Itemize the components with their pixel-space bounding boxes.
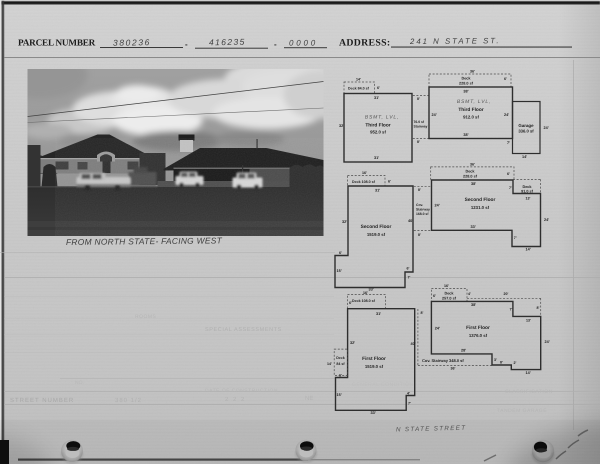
svg-text:1519.0 sf: 1519.0 sf xyxy=(365,364,384,369)
svg-text:8': 8' xyxy=(537,306,540,310)
svg-text:ROOMS: ROOMS xyxy=(135,314,157,320)
svg-text:7': 7' xyxy=(509,186,512,190)
svg-text:8': 8' xyxy=(500,361,503,365)
svg-text:Garage: Garage xyxy=(518,123,534,128)
svg-text:14': 14' xyxy=(526,371,531,375)
svg-text:14': 14' xyxy=(526,248,531,252)
svg-text:Stairway: Stairway xyxy=(414,125,428,129)
svg-text:1231.0 sf: 1231.0 sf xyxy=(471,205,490,210)
svg-text:FROM NORTH STATE- FACING WE: FROM NORTH STATE- FACING WEST xyxy=(66,235,223,247)
svg-text:Deck 108.0 sf: Deck 108.0 sf xyxy=(352,180,376,184)
svg-text:40': 40' xyxy=(408,219,413,223)
svg-text:84 sf: 84 sf xyxy=(336,362,345,366)
svg-text:40': 40' xyxy=(411,342,416,346)
svg-text:6': 6' xyxy=(349,301,352,305)
svg-text:First Floor: First Floor xyxy=(466,325,490,331)
svg-text:32': 32' xyxy=(342,220,347,224)
svg-text:76.0 sf: 76.0 sf xyxy=(414,120,425,124)
svg-text:7': 7' xyxy=(514,236,517,240)
svg-text:Deck: Deck xyxy=(444,292,454,296)
svg-text:13': 13' xyxy=(526,197,531,201)
svg-text:24': 24' xyxy=(435,204,440,208)
svg-text:31': 31' xyxy=(374,156,379,160)
svg-text:15': 15' xyxy=(337,269,342,273)
svg-text:38': 38' xyxy=(463,90,468,94)
svg-text:ADDRESS:: ADDRESS: xyxy=(339,38,390,49)
svg-text:0000: 0000 xyxy=(289,38,318,47)
svg-text:912.0 sf: 912.0 sf xyxy=(463,115,479,120)
svg-text:2 2 2: 2 2 2 xyxy=(225,396,246,403)
svg-text:Cov. Stairway 348.0 sf: Cov. Stairway 348.0 sf xyxy=(422,358,464,363)
svg-text:16': 16' xyxy=(444,284,449,288)
svg-text:14': 14' xyxy=(356,78,361,82)
svg-text:Deck 108.0 sf: Deck 108.0 sf xyxy=(352,299,376,303)
svg-text:24': 24' xyxy=(544,126,549,130)
svg-text:6': 6' xyxy=(377,86,380,90)
svg-text:First Floor: First Floor xyxy=(362,356,386,362)
svg-text:952.0 sf: 952.0 sf xyxy=(370,130,386,135)
svg-text:31': 31' xyxy=(374,96,379,100)
svg-text:SPECIAL ASSESSMENTS: SPECIAL ASSESSMENTS xyxy=(205,327,282,333)
svg-text:31': 31' xyxy=(376,312,381,316)
svg-text:24': 24' xyxy=(435,326,440,330)
svg-text:Deck: Deck xyxy=(465,170,475,174)
svg-text:CLASSIFICATION: CLASSIFICATION xyxy=(505,389,553,395)
svg-text:24': 24' xyxy=(545,340,550,344)
svg-text:Deck: Deck xyxy=(461,77,471,81)
svg-text:6': 6' xyxy=(339,251,342,255)
svg-text:6': 6' xyxy=(433,294,436,298)
svg-text:TANDEM GARAGE: TANDEM GARAGE xyxy=(497,408,547,414)
svg-text:-: - xyxy=(185,40,188,49)
svg-text:DATE OF CONSTRUCTION: DATE OF CONSTRUCTION xyxy=(205,388,278,394)
svg-text:33': 33' xyxy=(471,225,476,229)
svg-text:32': 32' xyxy=(350,341,355,345)
svg-text:Third Floor: Third Floor xyxy=(365,123,390,129)
svg-text:NE: NE xyxy=(305,395,313,402)
svg-text:7': 7' xyxy=(408,402,411,406)
svg-text:8': 8' xyxy=(417,140,420,144)
svg-text:BSMT, LVL,: BSMT, LVL, xyxy=(457,99,491,105)
svg-text:6': 6' xyxy=(507,172,510,176)
svg-text:33': 33' xyxy=(369,287,374,291)
svg-text:GENERAL CONDITION: GENERAL CONDITION xyxy=(352,382,414,388)
svg-text:13': 13' xyxy=(526,319,531,323)
svg-text:32': 32' xyxy=(339,124,344,128)
svg-text:Third Floor: Third Floor xyxy=(458,107,483,113)
svg-text:24': 24' xyxy=(504,113,509,117)
svg-text:6': 6' xyxy=(388,180,391,184)
svg-text:8': 8' xyxy=(418,188,421,192)
svg-text:36': 36' xyxy=(470,163,475,167)
svg-text:31': 31' xyxy=(375,189,380,193)
svg-text:33': 33' xyxy=(371,411,376,415)
svg-text:4': 4' xyxy=(407,391,410,395)
svg-text:38': 38' xyxy=(471,303,476,307)
svg-text:228.0 sf: 228.0 sf xyxy=(459,82,474,86)
svg-text:Deck: Deck xyxy=(522,185,532,189)
svg-text:6': 6' xyxy=(407,267,410,271)
svg-text:7': 7' xyxy=(507,141,510,145)
svg-text:20': 20' xyxy=(504,292,509,296)
svg-text:38': 38' xyxy=(463,133,468,137)
svg-text:2': 2' xyxy=(514,361,517,365)
svg-text:7': 7' xyxy=(510,308,513,312)
svg-text:91.0 sf: 91.0 sf xyxy=(521,190,534,194)
svg-text:380 1/2: 380 1/2 xyxy=(115,397,142,404)
svg-text:336.0 sf: 336.0 sf xyxy=(518,129,534,134)
svg-text:16': 16' xyxy=(363,291,368,295)
svg-text:228.0 sf: 228.0 sf xyxy=(463,175,478,179)
svg-text:36': 36' xyxy=(451,367,456,371)
svg-text:Second Floor: Second Floor xyxy=(465,197,496,203)
svg-text:24': 24' xyxy=(432,113,437,117)
svg-text:380236: 380236 xyxy=(113,37,151,48)
svg-text:6': 6' xyxy=(504,77,507,81)
svg-text:Deck: Deck xyxy=(336,356,345,360)
svg-text:38': 38' xyxy=(471,182,476,186)
svg-text:8': 8' xyxy=(418,233,421,237)
svg-text:28': 28' xyxy=(461,348,466,352)
svg-text:168.0 sf: 168.0 sf xyxy=(416,212,429,216)
svg-text:416235: 416235 xyxy=(209,37,246,48)
svg-text:36': 36' xyxy=(470,70,475,74)
svg-text:257.0 sf: 257.0 sf xyxy=(442,297,457,301)
svg-text:16': 16' xyxy=(362,171,367,175)
svg-text:Deck 84.0 sf: Deck 84.0 sf xyxy=(348,87,370,91)
svg-text:24': 24' xyxy=(544,218,549,222)
svg-text:-: - xyxy=(274,40,277,49)
svg-text:3': 3' xyxy=(494,358,497,362)
svg-text:BSMT, LVL,: BSMT, LVL, xyxy=(365,115,399,121)
svg-text:14': 14' xyxy=(522,155,527,159)
svg-text:1519.0 sf: 1519.0 sf xyxy=(367,232,386,237)
svg-text:8': 8' xyxy=(421,311,424,315)
svg-text:7': 7' xyxy=(408,276,411,280)
svg-text:8': 8' xyxy=(417,97,420,101)
svg-text:14': 14' xyxy=(327,362,332,366)
svg-text:NO.: NO. xyxy=(75,380,84,386)
svg-text:1376.0 sf: 1376.0 sf xyxy=(469,333,488,338)
svg-text:PARCEL NUMBER: PARCEL NUMBER xyxy=(18,38,96,48)
svg-text:Stairway: Stairway xyxy=(416,208,430,212)
svg-text:STREET NUMBER: STREET NUMBER xyxy=(10,397,74,404)
svg-text:15': 15' xyxy=(337,393,342,397)
svg-text:Cov.: Cov. xyxy=(416,203,423,207)
svg-text:241 N STATE ST.: 241 N STATE ST. xyxy=(409,36,501,46)
svg-text:Second Floor: Second Floor xyxy=(361,224,392,230)
svg-text:4': 4' xyxy=(468,292,471,296)
